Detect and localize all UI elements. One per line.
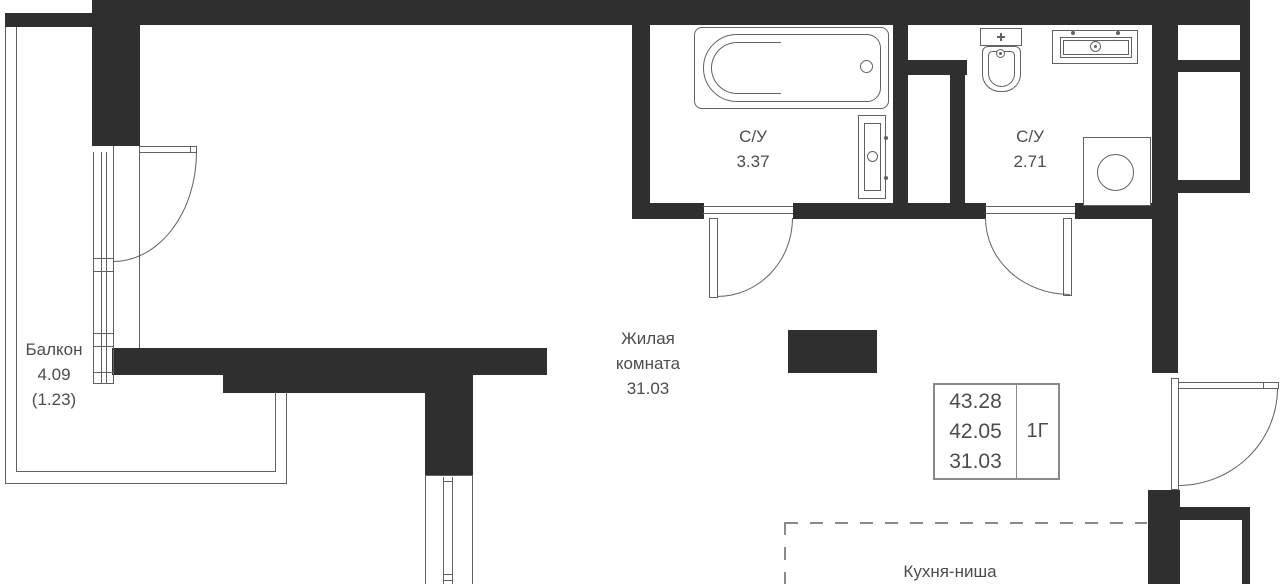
wall-entry-lower — [1148, 490, 1180, 584]
bathtub-drain-icon — [860, 60, 873, 73]
living-room-name: Жилая комната — [602, 326, 694, 376]
balcony-glazing-bottom-inner — [16, 471, 276, 472]
living-room-area: 31.03 — [602, 376, 694, 401]
south-window-right — [472, 475, 473, 584]
wall-bathrooms-bottom-b — [793, 203, 986, 219]
towel-rail-valve-icon — [867, 151, 878, 162]
wall-living-south-b — [223, 375, 473, 393]
balcony-label: Балкон 4.09 (1.23) — [6, 337, 102, 412]
bathroom2-area: 2.71 — [980, 149, 1080, 174]
sink-dot-right — [1116, 31, 1120, 35]
balcony-glazing-right-outer — [286, 392, 287, 484]
toilet-valve-icon-h — [997, 36, 1005, 38]
sink-dot-left — [1071, 31, 1075, 35]
floor-plan-canvas: Балкон 4.09 (1.23) С/У 3.37 С/У 2.71 Жил… — [0, 0, 1280, 584]
bathroom1-name: С/У — [703, 124, 803, 149]
unit-info-box: 43.28 42.05 31.03 1Г — [933, 383, 1060, 480]
south-window-crossbar-1 — [443, 481, 453, 482]
ventilation-duct — [788, 330, 877, 373]
unit-type-cell: 1Г — [1017, 385, 1058, 478]
wall-top-balcony-lip — [5, 13, 93, 27]
balcony-area: 4.09 — [6, 362, 102, 387]
bathroom2-door-frame-b — [985, 213, 1075, 214]
unit-areas-column: 43.28 42.05 31.03 — [935, 385, 1017, 478]
bathtub-inner-curve — [711, 42, 781, 94]
kitchen-niche-label: Кухня-ниша — [848, 559, 1052, 584]
bathroom2-door-swing-arc — [985, 218, 1070, 295]
unit-total-area: 43.28 — [949, 387, 1002, 417]
unit-reduced-area: 42.05 — [949, 417, 1002, 447]
west-window-glazing-b — [106, 152, 107, 383]
kitchen-niche-name: Кухня-ниша — [848, 559, 1052, 584]
balcony-glazing-left-outer — [5, 27, 6, 484]
west-window-crossbar-1a — [93, 258, 114, 259]
balcony-door-leaf-a — [140, 146, 197, 147]
towel-rail-dot-bottom — [884, 176, 888, 180]
south-window-glazing-a — [443, 477, 444, 584]
unit-living-area: 31.03 — [949, 447, 1002, 477]
bathroom2-name: С/У — [980, 124, 1080, 149]
wall-lower-right-band — [1180, 507, 1250, 520]
west-window-crossbar-1b — [93, 271, 114, 272]
unit-type-label: 1Г — [1027, 420, 1049, 443]
south-window-left — [425, 475, 426, 584]
wall-living-south-a — [112, 348, 547, 375]
wall-lower-right-edge — [1242, 520, 1250, 584]
wall-living-south-column — [425, 393, 473, 475]
kitchen-niche-dashed-left — [784, 522, 786, 584]
balcony-name: Балкон — [6, 337, 102, 362]
bathroom1-area: 3.37 — [703, 149, 803, 174]
wall-bathroom2-left — [950, 72, 965, 219]
bathroom2-label: С/У 2.71 — [980, 124, 1080, 174]
living-room-label: Жилая комната 31.03 — [602, 326, 694, 401]
bathroom1-door-swing-arc — [717, 218, 793, 297]
balcony-door-swing-arc — [113, 152, 197, 262]
south-window-cap — [425, 475, 473, 476]
wall-shaft-right-band1 — [1178, 60, 1240, 72]
wall-top — [93, 0, 1250, 25]
balcony-area-note: (1.23) — [6, 387, 102, 412]
wall-west-column — [92, 0, 140, 146]
kitchen-niche-dashed-top — [785, 522, 1147, 524]
balcony-glazing-bottom-outer — [5, 483, 287, 484]
wall-east — [1152, 20, 1178, 373]
toilet-flush-dot — [999, 52, 1002, 55]
bathroom1-door-frame-a — [703, 206, 793, 207]
south-window-crossbar-3 — [443, 580, 453, 581]
wall-shaft-left — [893, 23, 908, 219]
bathroom2-door-frame-a — [985, 206, 1075, 207]
wall-shaft-right-band2 — [1178, 180, 1240, 193]
wall-right-edge — [1240, 25, 1250, 193]
entrance-door-swing-arc — [1178, 388, 1278, 486]
wall-bathroom1-left — [632, 23, 650, 219]
west-window-crossbar-2a — [93, 333, 114, 334]
south-window-glazing-b — [452, 477, 453, 584]
sink-faucet-dot — [1094, 45, 1097, 48]
washing-machine-drum — [1097, 154, 1134, 191]
bathroom1-door-frame-b — [703, 213, 793, 214]
wall-bathrooms-bottom-a — [650, 203, 704, 219]
balcony-glazing-right-inner — [275, 392, 276, 472]
south-window-crossbar-2 — [443, 574, 453, 575]
bathroom1-label: С/У 3.37 — [703, 124, 803, 174]
towel-rail-dot-top — [884, 136, 888, 140]
